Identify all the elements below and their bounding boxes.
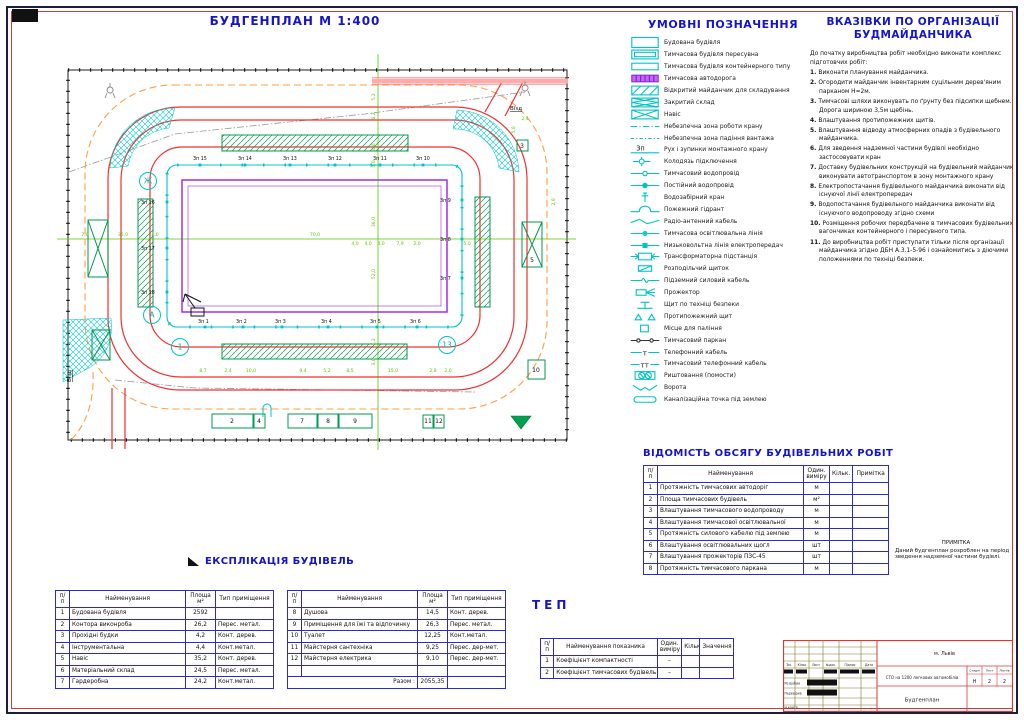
stamp-fill	[784, 670, 793, 674]
legend-title: УМОВНІ ПОЗНАЧЕННЯ	[630, 18, 816, 31]
stamp-fill	[807, 690, 837, 696]
table-row: 5Навіс35,2Конт. дерев.	[56, 654, 274, 666]
legend-item-label: Телефонний кабель	[664, 349, 727, 356]
table-header-row: п/пНайменування показникаОдин. виміруКіл…	[541, 639, 734, 656]
site-plan: ЖА113 Зп 1Зп 2Зп 3Зп 4Зп 5Зп 6Зп 7Зп 8Зп…	[55, 52, 580, 452]
dimension-value: 4,0	[151, 232, 158, 238]
existing-road	[372, 78, 568, 85]
crane-stop-marker	[379, 164, 382, 167]
table-cell: 26,2	[186, 619, 216, 631]
stamp-fill	[862, 670, 875, 674]
crane-stop-label: Зп 13	[283, 156, 297, 162]
sewer-point-icon	[630, 390, 664, 409]
legend-item-label: Низьковольтна лінія електропередач	[664, 242, 783, 249]
table-cell: Перес. метал.	[448, 619, 506, 631]
dimension-value: 4,0	[377, 241, 384, 247]
gate-marker	[511, 416, 531, 429]
dimension-value: 4,6	[371, 143, 377, 150]
dimension-value: 4,0	[371, 160, 377, 167]
table-cell	[288, 665, 302, 677]
entrance-label: Вїзд	[510, 106, 522, 112]
table-cell: 2	[644, 494, 658, 506]
table-row: 3Влаштування тимчасового водопроводум	[644, 506, 889, 518]
legend-item-label: Постійний водопровід	[664, 182, 734, 189]
crane-stop-label: Зп 14	[238, 156, 252, 162]
axis-label: А	[149, 311, 155, 320]
table-cell: Коефіцієнт компактності	[554, 656, 658, 668]
title-block: Зм.КількЛист№док.ПідписДатаРозробивПерев…	[783, 640, 1013, 712]
instructions-title-line1: ВКАЗІВКИ ПО ОРГАНІЗАЦІЇ	[827, 16, 1000, 28]
table-cell: м	[804, 506, 830, 518]
legend-item-label: Навіс	[664, 111, 681, 118]
crane-stop-marker	[166, 247, 169, 250]
table-cell: Влаштування освітлювальних щогл	[658, 540, 804, 552]
crane-stop-label: Зп 9	[440, 198, 451, 204]
column-header: Один. виміру	[804, 466, 830, 483]
legend-item-label: Ворота	[664, 384, 686, 391]
stamp-col-header: Кільк	[798, 663, 807, 667]
legend-item-label: Риштовання (помости)	[664, 372, 736, 379]
table-cell: Протяжність тимчасових автодоріг	[658, 483, 804, 495]
instruction-item: Виконати планування майданчика.	[810, 69, 1016, 78]
dimension-value: 5,2	[371, 93, 377, 100]
table-cell: 12	[288, 654, 302, 666]
table-row: 12Майстерня електрика9,10Перес. дер-мет.	[288, 654, 506, 666]
stamp-project: СТО на 1200 легкових автомобілів	[886, 675, 959, 680]
table-cell: 1	[541, 656, 554, 668]
total-label: Разом :	[288, 677, 418, 689]
explication-table-right: п/пНайменуванняПлоща м²Тип приміщення8Ду…	[287, 590, 506, 689]
dimension-value: 36,0	[371, 217, 377, 227]
dimension-value: 10,0	[246, 368, 256, 374]
table-cell: 6	[644, 540, 658, 552]
building-number: 5	[530, 257, 534, 264]
instruction-item: Огородити майданчик інвентарним суцільни…	[810, 79, 1016, 96]
table-cell: Майстерня електрика	[302, 654, 418, 666]
stamp-col-header: Лист	[812, 663, 820, 667]
crane-stop-label: Зп 6	[410, 319, 421, 325]
table-cell	[853, 483, 889, 495]
table-row: 9Приміщення для їжі та відпочинку26,3Пер…	[288, 619, 506, 631]
dimension-value: 8,5	[346, 368, 353, 374]
table-cell: 14,5	[418, 608, 448, 620]
crane-stop-label: Зп 3	[275, 319, 286, 325]
legend-item-label: Тимчасовий телефонний кабель	[664, 360, 767, 367]
stamp-fill	[796, 670, 807, 674]
dimension-value: 15,0	[388, 368, 398, 374]
dimension-value: 2,4	[224, 368, 231, 374]
table-cell: Прохідні будки	[70, 631, 186, 643]
north-arrow-icon	[188, 557, 199, 566]
column-header: Найменування	[70, 591, 186, 608]
table-cell: м	[804, 517, 830, 529]
building-number: 3	[520, 143, 524, 150]
crane-stop-label: Зп 1	[198, 319, 209, 325]
table-cell: м	[804, 563, 830, 575]
instruction-item: Доставку будівельних конструкцій на буді…	[810, 164, 1016, 181]
table-cell: Протяжність силового кабелю під землею	[658, 529, 804, 541]
crane-stop-marker	[334, 164, 337, 167]
legend-item-label: Небезпечна зона падіння вантажа	[664, 135, 774, 142]
crane-stop-label: Зп 12	[328, 156, 342, 162]
table-cell: 4	[56, 642, 70, 654]
column-header: Кільк	[682, 639, 700, 656]
column-header: п/п	[644, 466, 658, 483]
table-row: 10Туалет12,25Конт.метал.	[288, 631, 506, 643]
crane-stop-label: Зп 17	[141, 246, 155, 252]
crane-stop-label: Зп 4	[321, 319, 332, 325]
table-cell	[853, 563, 889, 575]
dimension-value: 5,2	[323, 368, 330, 374]
table-row: 1Коефіцієнт компактності–	[541, 656, 734, 668]
dimension-value: 5,0	[511, 126, 517, 133]
building-number-labels: 2478911123510	[230, 143, 540, 425]
crane-stop-marker	[244, 164, 247, 167]
crane-stop-label: Зп 10	[416, 156, 430, 162]
tep-table: п/пНайменування показникаОдин. виміруКіл…	[540, 638, 734, 679]
table-row: 7Влаштування прожекторів ПЗС-45шт	[644, 552, 889, 564]
legend-item-label: Відкритий майданчик для складування	[664, 87, 790, 94]
column-header: п/п	[288, 591, 302, 608]
instructions-title: ВКАЗІВКИ ПО ОРГАНІЗАЦІЇ БУДМАЙДАНЧИКА	[810, 16, 1016, 42]
dimension-value: 2,8	[429, 368, 436, 374]
dimension-value: 4,0	[364, 241, 371, 247]
table-row: 4Влаштування тимчасової освітлювальноїм	[644, 517, 889, 529]
table-cell: 11	[288, 642, 302, 654]
table-row: 3Прохідні будки4,2Конт. дерев.	[56, 631, 274, 643]
legend-item-label: Радіо-антенний кабель	[664, 218, 737, 225]
drawing-sheet: БУДГЕНПЛАН М 1:400	[0, 0, 1024, 720]
stamp-stage-label: Стадія	[969, 669, 980, 673]
table-row: 2Контора виконроба26,2Перес. метал.	[56, 619, 274, 631]
dimension-value: 2,4	[521, 116, 528, 122]
legend-item-label: Місце для паління	[664, 325, 722, 332]
table-cell: 3	[644, 506, 658, 518]
crane-stop-label: Зп 16	[141, 200, 155, 206]
column-header: Тип приміщення	[448, 591, 506, 608]
table-cell: 2592	[186, 608, 216, 620]
table-cell: шт	[804, 552, 830, 564]
column-header: Один. виміру	[657, 639, 681, 656]
column-header: Значення	[700, 639, 734, 656]
table-cell: 5	[56, 654, 70, 666]
column-header: п/п	[56, 591, 70, 608]
legend-item: Каналізаційна точка під землею	[630, 394, 816, 406]
table-cell: 6	[56, 665, 70, 677]
table-cell: 26,3	[418, 619, 448, 631]
explication-table-left: п/пНайменуванняПлоща м²Тип приміщення1Бу…	[55, 590, 274, 689]
table-cell: Інструментальна	[70, 642, 186, 654]
table-row	[288, 665, 506, 677]
table-cell: шт	[804, 540, 830, 552]
legend-item-label: Небезпечна зона роботи крану	[664, 123, 763, 130]
table-cell: 1	[56, 608, 70, 620]
table-row: 5Протяжність силового кабелю під землеюм	[644, 529, 889, 541]
dimension-value: 9,4	[299, 368, 306, 374]
table-cell: Конт. дерев.	[216, 654, 274, 666]
table-cell: Перес. метал.	[216, 619, 274, 631]
table-cell	[830, 529, 853, 541]
building-number: 2	[230, 418, 234, 425]
building-number: 9	[353, 418, 357, 425]
stamp-sheet-label: Лист	[986, 669, 994, 673]
legend-item-label: Закритий склад	[664, 99, 715, 106]
table-cell	[853, 552, 889, 564]
crane-stop-label: Зп 2	[236, 319, 247, 325]
table-row: 1Протяжність тимчасових автодорігм	[644, 483, 889, 495]
table-cell: Навіс	[70, 654, 186, 666]
table-cell: Перес. дер-мет.	[448, 642, 506, 654]
table-cell: 10	[288, 631, 302, 643]
instruction-item: Електропостачання будівельного майданчик…	[810, 183, 1016, 200]
legend-item-label: Тимчасова будівля пересувна	[664, 51, 758, 58]
crane-stop-label: Зп 7	[440, 276, 451, 282]
table-cell: 35,2	[186, 654, 216, 666]
crane-stop-marker	[242, 326, 245, 329]
table-cell	[853, 506, 889, 518]
building-under-construction	[182, 180, 447, 312]
legend-item-label: Будована будівля	[664, 39, 720, 46]
dimension-value: 7,0	[81, 232, 88, 238]
table-cell	[853, 540, 889, 552]
table-cell: 1	[644, 483, 658, 495]
table-header-row: п/пНайменуванняПлоща м²Тип приміщення	[288, 591, 506, 608]
table-row: 1Будована будівля2592	[56, 608, 274, 620]
stamp-col-header: Підпис	[844, 663, 855, 667]
note-text: Даний будгенплан розроблен на період зве…	[895, 548, 1017, 560]
table-cell	[853, 494, 889, 506]
building-number: 7	[300, 418, 304, 425]
table-cell	[830, 552, 853, 564]
stamp-sheets-label: Листів	[999, 669, 1009, 673]
crane-stop-marker	[281, 326, 284, 329]
legend-item-label: Тимчасовий водопровід	[664, 170, 739, 177]
table-cell	[700, 667, 734, 679]
table-row: 2Площа тимчасових будівельм²	[644, 494, 889, 506]
stamp-fill	[824, 670, 837, 674]
legend-panel: УМОВНІ ПОЗНАЧЕННЯ Будована будівляТимчас…	[630, 18, 816, 406]
stamp-fill	[840, 670, 859, 674]
table-header-row: п/пНайменуванняОдин. виміруКільк.Примітк…	[644, 466, 889, 483]
legend-item-label: Розподільчий щиток	[664, 265, 729, 272]
dimension-value: 4,0	[351, 241, 358, 247]
legend-item-label: Трансформаторна підстанція	[664, 253, 757, 260]
table-cell: 4,2	[186, 631, 216, 643]
table-cell: м	[804, 483, 830, 495]
total-row: Разом :2055,35	[288, 677, 506, 689]
column-header: Примітка	[853, 466, 889, 483]
corner-stamp	[12, 9, 38, 22]
building-number: 11	[424, 418, 432, 425]
dimension-value: 6,2	[371, 112, 377, 119]
legend-item-label: Прожектор	[664, 289, 700, 296]
table-cell: 12,25	[418, 631, 448, 643]
dimension-value: 7,2	[371, 338, 377, 345]
crane-stop-marker	[422, 164, 425, 167]
instructions-panel: ВКАЗІВКИ ПО ОРГАНІЗАЦІЇ БУДМАЙДАНЧИКА До…	[810, 16, 1016, 264]
table-cell: 7	[644, 552, 658, 564]
dimension-value: 2,0	[551, 198, 557, 205]
crane-stop-marker	[461, 277, 464, 280]
table-cell: Конт. дерев.	[448, 608, 506, 620]
table-row: 4Інструментальна4,4Конт.метал.	[56, 642, 274, 654]
legend-item-label: Тимчасова освітлювальна лінія	[664, 230, 763, 237]
instructions-intro: До початку виробництва робіт необхідно в…	[810, 50, 1016, 67]
table-cell: 8	[288, 608, 302, 620]
column-header: Найменування	[302, 591, 418, 608]
table-cell: Влаштування тимчасової освітлювальної	[658, 517, 804, 529]
water-tap-icon	[263, 404, 271, 417]
instruction-item: До виробництва робіт приступати тільки п…	[810, 239, 1016, 265]
column-header: Площа м²	[418, 591, 448, 608]
building-number: 4	[257, 418, 261, 425]
crane-stop-marker	[199, 164, 202, 167]
stamp-drawing-title: Будгенплан	[905, 698, 940, 704]
building-number: 12	[435, 418, 443, 425]
table-cell: 4	[644, 517, 658, 529]
table-cell: 7	[56, 677, 70, 689]
table-cell	[682, 667, 700, 679]
table-cell	[830, 517, 853, 529]
column-header: Площа м²	[186, 591, 216, 608]
table-cell	[853, 517, 889, 529]
table-cell: Конт.метал.	[216, 642, 274, 654]
crane-stop-marker	[376, 326, 379, 329]
instructions-title-line2: БУДМАЙДАНЧИКА	[854, 29, 972, 41]
page-title: БУДГЕНПЛАН М 1:400	[170, 14, 420, 28]
table-cell: 8	[644, 563, 658, 575]
legend-items: Будована будівляТимчасова будівля пересу…	[630, 37, 816, 406]
crane-stop-label: Зп 8	[440, 237, 451, 243]
table-cell	[830, 563, 853, 575]
table-cell: 5	[644, 529, 658, 541]
crane-stop-label: Зп 18	[141, 290, 155, 296]
table-cell: Конт.метал.	[448, 631, 506, 643]
legend-item-label: Рух і зупинки монтажного крану	[664, 146, 768, 153]
table-cell: Майстерня сантехніка	[302, 642, 418, 654]
table-row: 11Майстерня сантехніка9,25Перес. дер-мет…	[288, 642, 506, 654]
legend-item-label: Пожежний гідрант	[664, 206, 724, 213]
crane-stop-marker	[327, 326, 330, 329]
instructions-list: Виконати планування майданчика.Огородити…	[810, 69, 1016, 264]
table-cell: –	[657, 667, 681, 679]
total-value: 2055,35	[418, 677, 448, 689]
crane-stop-marker	[461, 199, 464, 202]
legend-item-label: Щит по техніці безпеки	[664, 301, 739, 308]
legend-item-label: Каналізаційна точка під землею	[664, 396, 767, 403]
legend-item-label: Тимчасовий паркан	[664, 337, 726, 344]
table-cell: 3	[56, 631, 70, 643]
table-cell: м	[804, 529, 830, 541]
stamp-sheets-value: 2	[1003, 679, 1006, 685]
stamp-role: Розробив	[785, 682, 801, 686]
dimension-value: 7,9	[396, 241, 403, 247]
dimension-value: 8,7	[199, 368, 206, 374]
dimension-value: 70,0	[310, 232, 320, 238]
stamp-col-header: Зм.	[786, 663, 791, 667]
table-cell	[682, 656, 700, 668]
table-cell	[700, 656, 734, 668]
table-row: 8Душова14,5Конт. дерев.	[288, 608, 506, 620]
note-title: ПРИМІТКА	[895, 540, 1017, 546]
table-cell: Протяжність тимчасового паркана	[658, 563, 804, 575]
instruction-item: Для зведення надземної частини будівлі н…	[810, 145, 1016, 162]
crane-stop-marker	[416, 326, 419, 329]
table-cell: Будована будівля	[70, 608, 186, 620]
table-cell: Влаштування тимчасового водопроводу	[658, 506, 804, 518]
table-cell: 9,25	[418, 642, 448, 654]
table-cell: Туалет	[302, 631, 418, 643]
instruction-item: Водопостачання будівельного майданчика в…	[810, 201, 1016, 218]
explication-title: ЕКСПЛІКАЦІЯ БУДІВЕЛЬ	[205, 556, 354, 567]
building-number: 10	[532, 367, 540, 374]
table-cell: м²	[804, 494, 830, 506]
table-cell: 24,2	[186, 677, 216, 689]
dimension-value: 35,0	[118, 232, 128, 238]
table-cell: Душова	[302, 608, 418, 620]
explication-header: ЕКСПЛІКАЦІЯ БУДІВЕЛЬ	[188, 556, 354, 567]
dimension-value: 52,0	[371, 269, 377, 279]
table-cell: Конт.метал.	[216, 677, 274, 689]
crane-stop-marker	[289, 164, 292, 167]
legend-item-label: Тимчасова будівля контейнерного типу	[664, 63, 790, 70]
table-cell: 2	[56, 619, 70, 631]
crane-stop-label: Зп 5	[370, 319, 381, 325]
table-header-row: п/пНайменуванняПлоща м²Тип приміщення	[56, 591, 274, 608]
works-table: п/пНайменуванняОдин. виміруКільк.Примітк…	[643, 465, 889, 575]
dimension-value: 2,0	[413, 241, 420, 247]
table-cell	[448, 677, 506, 689]
table-cell	[830, 483, 853, 495]
table-cell: –	[657, 656, 681, 668]
table-cell: Перес. метал.	[216, 665, 274, 677]
legend-item-label: Тимчасова автодорога	[664, 75, 736, 82]
table-cell	[418, 665, 448, 677]
table-row: 2Коефіцієнт тимчасових будівель–	[541, 667, 734, 679]
table-cell	[830, 506, 853, 518]
crane-stop-marker	[461, 238, 464, 241]
table-cell	[853, 529, 889, 541]
column-header: Кільк.	[830, 466, 853, 483]
table-row: 6Влаштування освітлювальних щоглшт	[644, 540, 889, 552]
table-row: 6Матеріальний склад24,5Перес. метал.	[56, 665, 274, 677]
axis-label: 13	[442, 341, 452, 350]
table-cell: 2	[541, 667, 554, 679]
table-cell: 9	[288, 619, 302, 631]
column-header: Тип приміщення	[216, 591, 274, 608]
storage-platforms	[138, 135, 490, 359]
table-cell: Коефіцієнт тимчасових будівель	[554, 667, 658, 679]
floodlight-icons	[105, 81, 530, 98]
table-cell	[302, 665, 418, 677]
table-cell: Приміщення для їжі та відпочинку	[302, 619, 418, 631]
table-cell	[448, 665, 506, 677]
table-cell	[216, 608, 274, 620]
legend-item-label: Підземний силовий кабель	[664, 277, 749, 284]
axis-label: 1	[178, 343, 183, 352]
stamp-col-header: Дата	[865, 663, 873, 667]
stamp-city: м. Львів	[934, 651, 955, 657]
crane-stop-marker	[204, 326, 207, 329]
tep-title: ТЕП	[532, 598, 570, 612]
table-cell: Контора виконроба	[70, 619, 186, 631]
note-block: ПРИМІТКА Даний будгенплан розроблен на п…	[895, 540, 1017, 560]
table-row: 7Гардеробна24,2Конт.метал.	[56, 677, 274, 689]
table-cell: 24,5	[186, 665, 216, 677]
column-header: Найменування	[658, 466, 804, 483]
stamp-role: Перевірив	[785, 692, 802, 696]
table-cell: Влаштування прожекторів ПЗС-45	[658, 552, 804, 564]
